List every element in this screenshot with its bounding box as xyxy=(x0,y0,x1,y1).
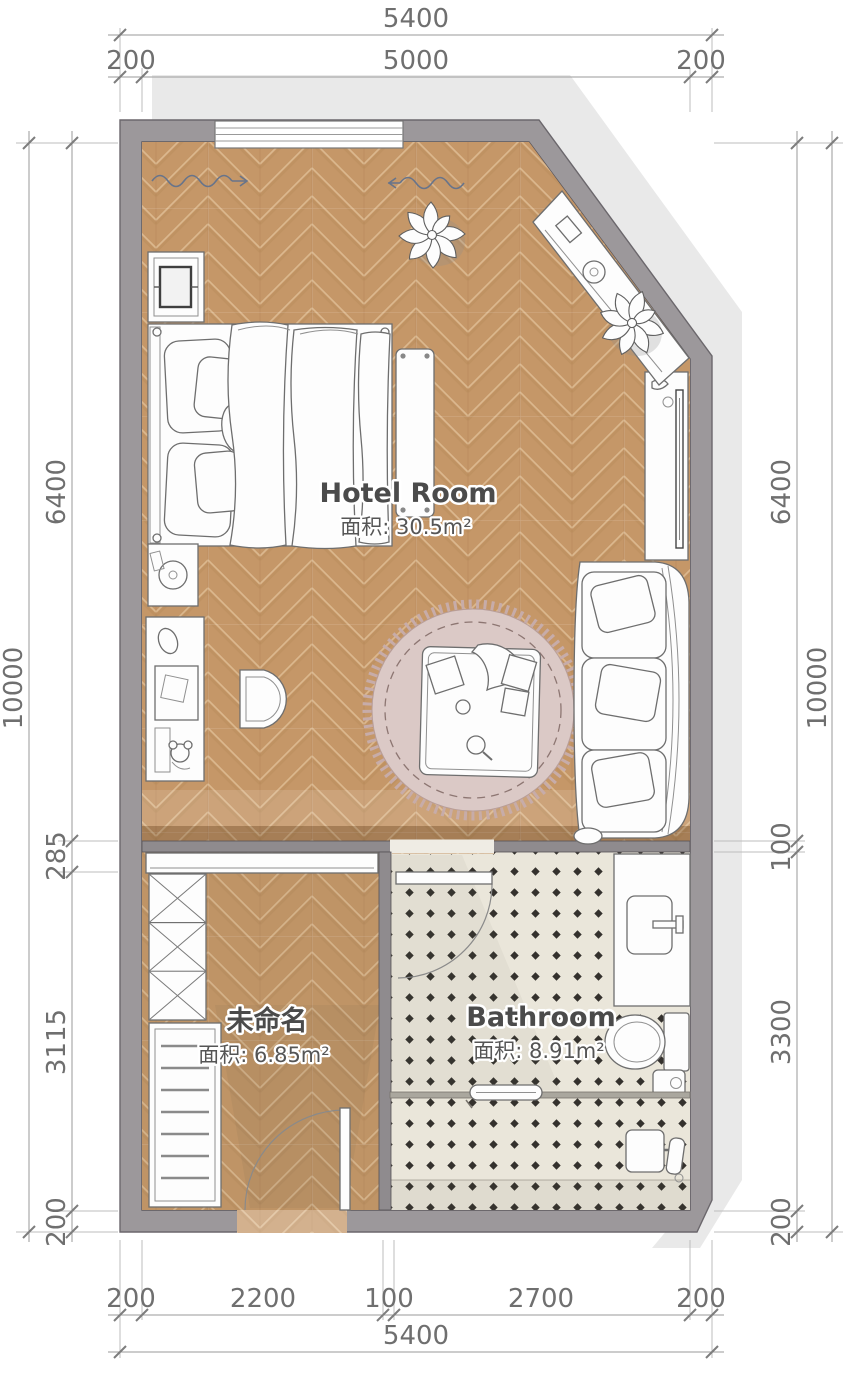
hotel-room-label[interactable]: Hotel Room 面积: 30.5m² xyxy=(319,478,496,539)
dim-left-seg: 200 xyxy=(42,1197,72,1247)
dim-bottom-seg: 2700 xyxy=(508,1284,574,1314)
room-area: 面积: 8.91m² xyxy=(473,1039,604,1063)
room-name: 未命名 xyxy=(227,1005,308,1037)
bathroom-label[interactable]: Bathroom 面积: 8.91m² xyxy=(466,1002,615,1063)
dim-left-seg: 3115 xyxy=(42,1009,72,1075)
faucet-icon xyxy=(676,916,683,933)
room-area: 面积: 30.5m² xyxy=(340,515,471,539)
dim-top-seg: 200 xyxy=(106,46,156,76)
nightstand-top[interactable] xyxy=(148,252,204,322)
sofa[interactable] xyxy=(574,562,689,844)
entry-door-threshold xyxy=(237,1210,347,1233)
dim-right-seg: 6400 xyxy=(767,459,797,525)
dimensions-left: 10000 6400 285 3115 200 xyxy=(0,131,118,1247)
room-name: Bathroom xyxy=(466,1002,615,1033)
vanity[interactable] xyxy=(614,854,690,1006)
dim-bottom-total: 5400 xyxy=(383,1321,449,1351)
dim-bottom-seg: 200 xyxy=(676,1284,726,1314)
dimensions-bottom: 200 2200 100 2700 200 5400 xyxy=(106,1240,726,1358)
tv-cabinet[interactable] xyxy=(645,372,688,560)
dim-bottom-seg: 100 xyxy=(364,1284,414,1314)
wardrobe[interactable] xyxy=(149,874,206,1020)
dim-top-seg: 200 xyxy=(676,46,726,76)
toilet[interactable] xyxy=(605,1013,689,1071)
window xyxy=(215,121,403,148)
dresser[interactable] xyxy=(146,617,204,781)
dim-right-seg: 200 xyxy=(767,1197,797,1247)
room-area: 面积: 6.85m² xyxy=(198,1043,329,1067)
room-name: Hotel Room xyxy=(319,478,496,509)
dim-top-total: 5400 xyxy=(383,4,449,34)
dim-bottom-seg: 200 xyxy=(106,1284,156,1314)
coffee-table[interactable] xyxy=(419,644,540,778)
dim-left-total: 10000 xyxy=(0,647,29,730)
dim-right-total: 10000 xyxy=(803,647,833,730)
dim-left-seg: 285 xyxy=(42,831,72,881)
dim-top-seg: 5000 xyxy=(383,46,449,76)
dim-right-seg: 100 xyxy=(767,822,797,872)
dim-left-seg: 6400 xyxy=(42,459,72,525)
nightstand-bottom[interactable] xyxy=(148,544,198,606)
floor-plan-canvas: 5400 200 5000 200 200 2200 100 2700 200 … xyxy=(0,0,862,1373)
dim-right-seg: 3300 xyxy=(767,999,797,1065)
dim-bottom-seg: 2200 xyxy=(230,1284,296,1314)
closet-shelf[interactable] xyxy=(146,853,378,873)
